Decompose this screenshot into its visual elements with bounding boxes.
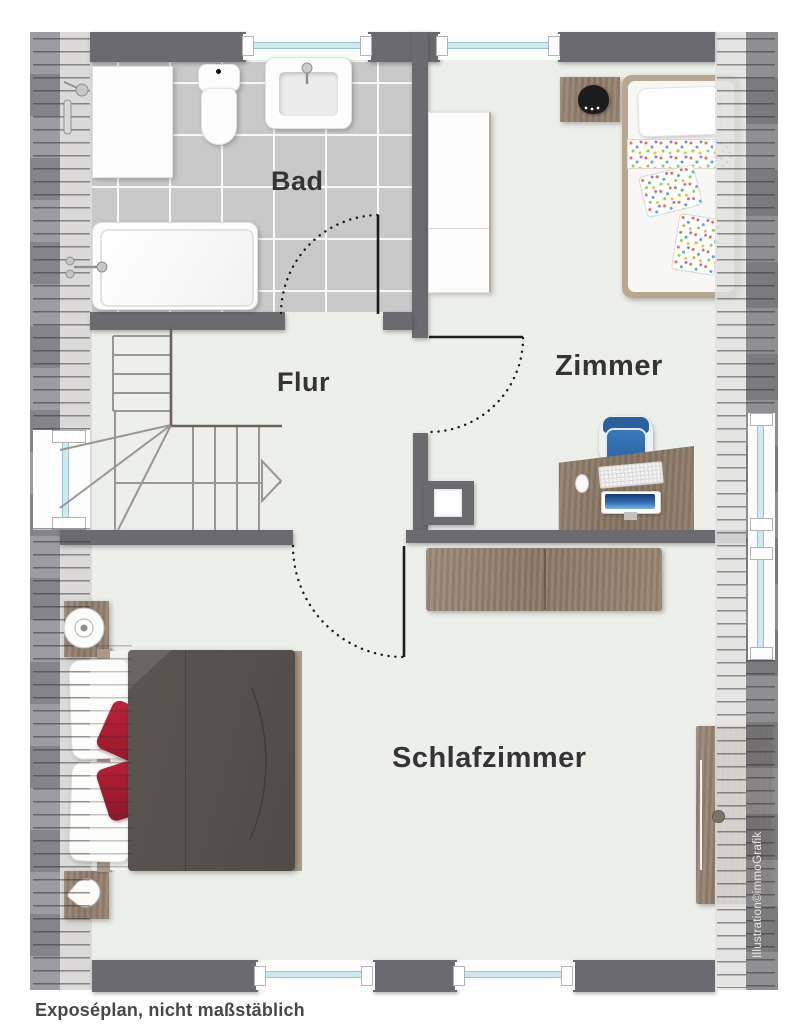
wall-top-3 [558, 32, 717, 62]
wall-bottom-1 [92, 960, 258, 992]
window-cap [361, 966, 373, 986]
bed-double-duvet [128, 650, 295, 871]
wardrobe-divider [429, 228, 489, 229]
window-cap [548, 36, 560, 56]
wardrobe-knob [712, 810, 725, 823]
pillow-single [637, 86, 721, 138]
kids-lamp [578, 85, 609, 114]
wall-bottom-2 [373, 960, 457, 992]
window-cap [750, 518, 773, 531]
mouse [575, 474, 589, 493]
window-cap [453, 966, 465, 986]
shaft-opening [434, 489, 462, 517]
window-glass [443, 42, 555, 49]
window-cap [254, 966, 266, 986]
monitor-screen [605, 494, 655, 509]
shower [92, 66, 173, 178]
window-cap [750, 647, 773, 660]
wall-bottom-3 [573, 960, 715, 992]
wall-bedroom-top-left [60, 530, 293, 545]
roof-hatch-left-lower [33, 528, 90, 988]
watermark-credit: Illustration©immoGrafik [752, 831, 764, 958]
roof-hatch-left-upper [33, 38, 90, 432]
roof-hatch-right-upper [746, 38, 775, 413]
window-glass [757, 420, 764, 653]
toilet-bowl [201, 88, 237, 145]
room-label-bathroom: Bad [271, 166, 324, 197]
toilet-button [216, 69, 221, 74]
room-label-hallway: Flur [277, 367, 330, 398]
roof-hatch-left-extension [90, 645, 132, 870]
wall-bedroom-top-right [406, 530, 748, 543]
room-label-bedroom: Schlafzimmer [392, 742, 587, 775]
window-glass [260, 971, 371, 978]
wall-top-2 [368, 32, 440, 62]
plan-caption: Exposéplan, nicht maßstäblich [35, 1000, 305, 1021]
bathtub-inner [100, 229, 254, 307]
window-cap [436, 36, 448, 56]
wall-bathroom-bottom [90, 312, 285, 330]
wardrobe-white [428, 112, 491, 293]
room-label-room: Zimmer [555, 350, 663, 383]
floor-plan: Bad Flur Zimmer Schlafzimmer Illustratio… [0, 0, 806, 1024]
window-glass [62, 436, 69, 524]
sink-basin [279, 72, 338, 116]
window-glass [248, 42, 366, 49]
window-cap [360, 36, 372, 56]
wall-bathroom-right [412, 32, 428, 338]
wall-top-1 [90, 32, 246, 62]
window-cap [242, 36, 254, 56]
window-cap [750, 547, 773, 560]
roof-hatch-right-inner [717, 38, 746, 988]
monitor-stand [624, 512, 637, 520]
wardrobe-handle [700, 760, 702, 870]
window-glass [459, 971, 571, 978]
window-cap [561, 966, 573, 986]
window-cap [750, 413, 773, 426]
wall-bathroom-bottom-2 [383, 312, 412, 330]
sideboard-divider [544, 549, 546, 610]
